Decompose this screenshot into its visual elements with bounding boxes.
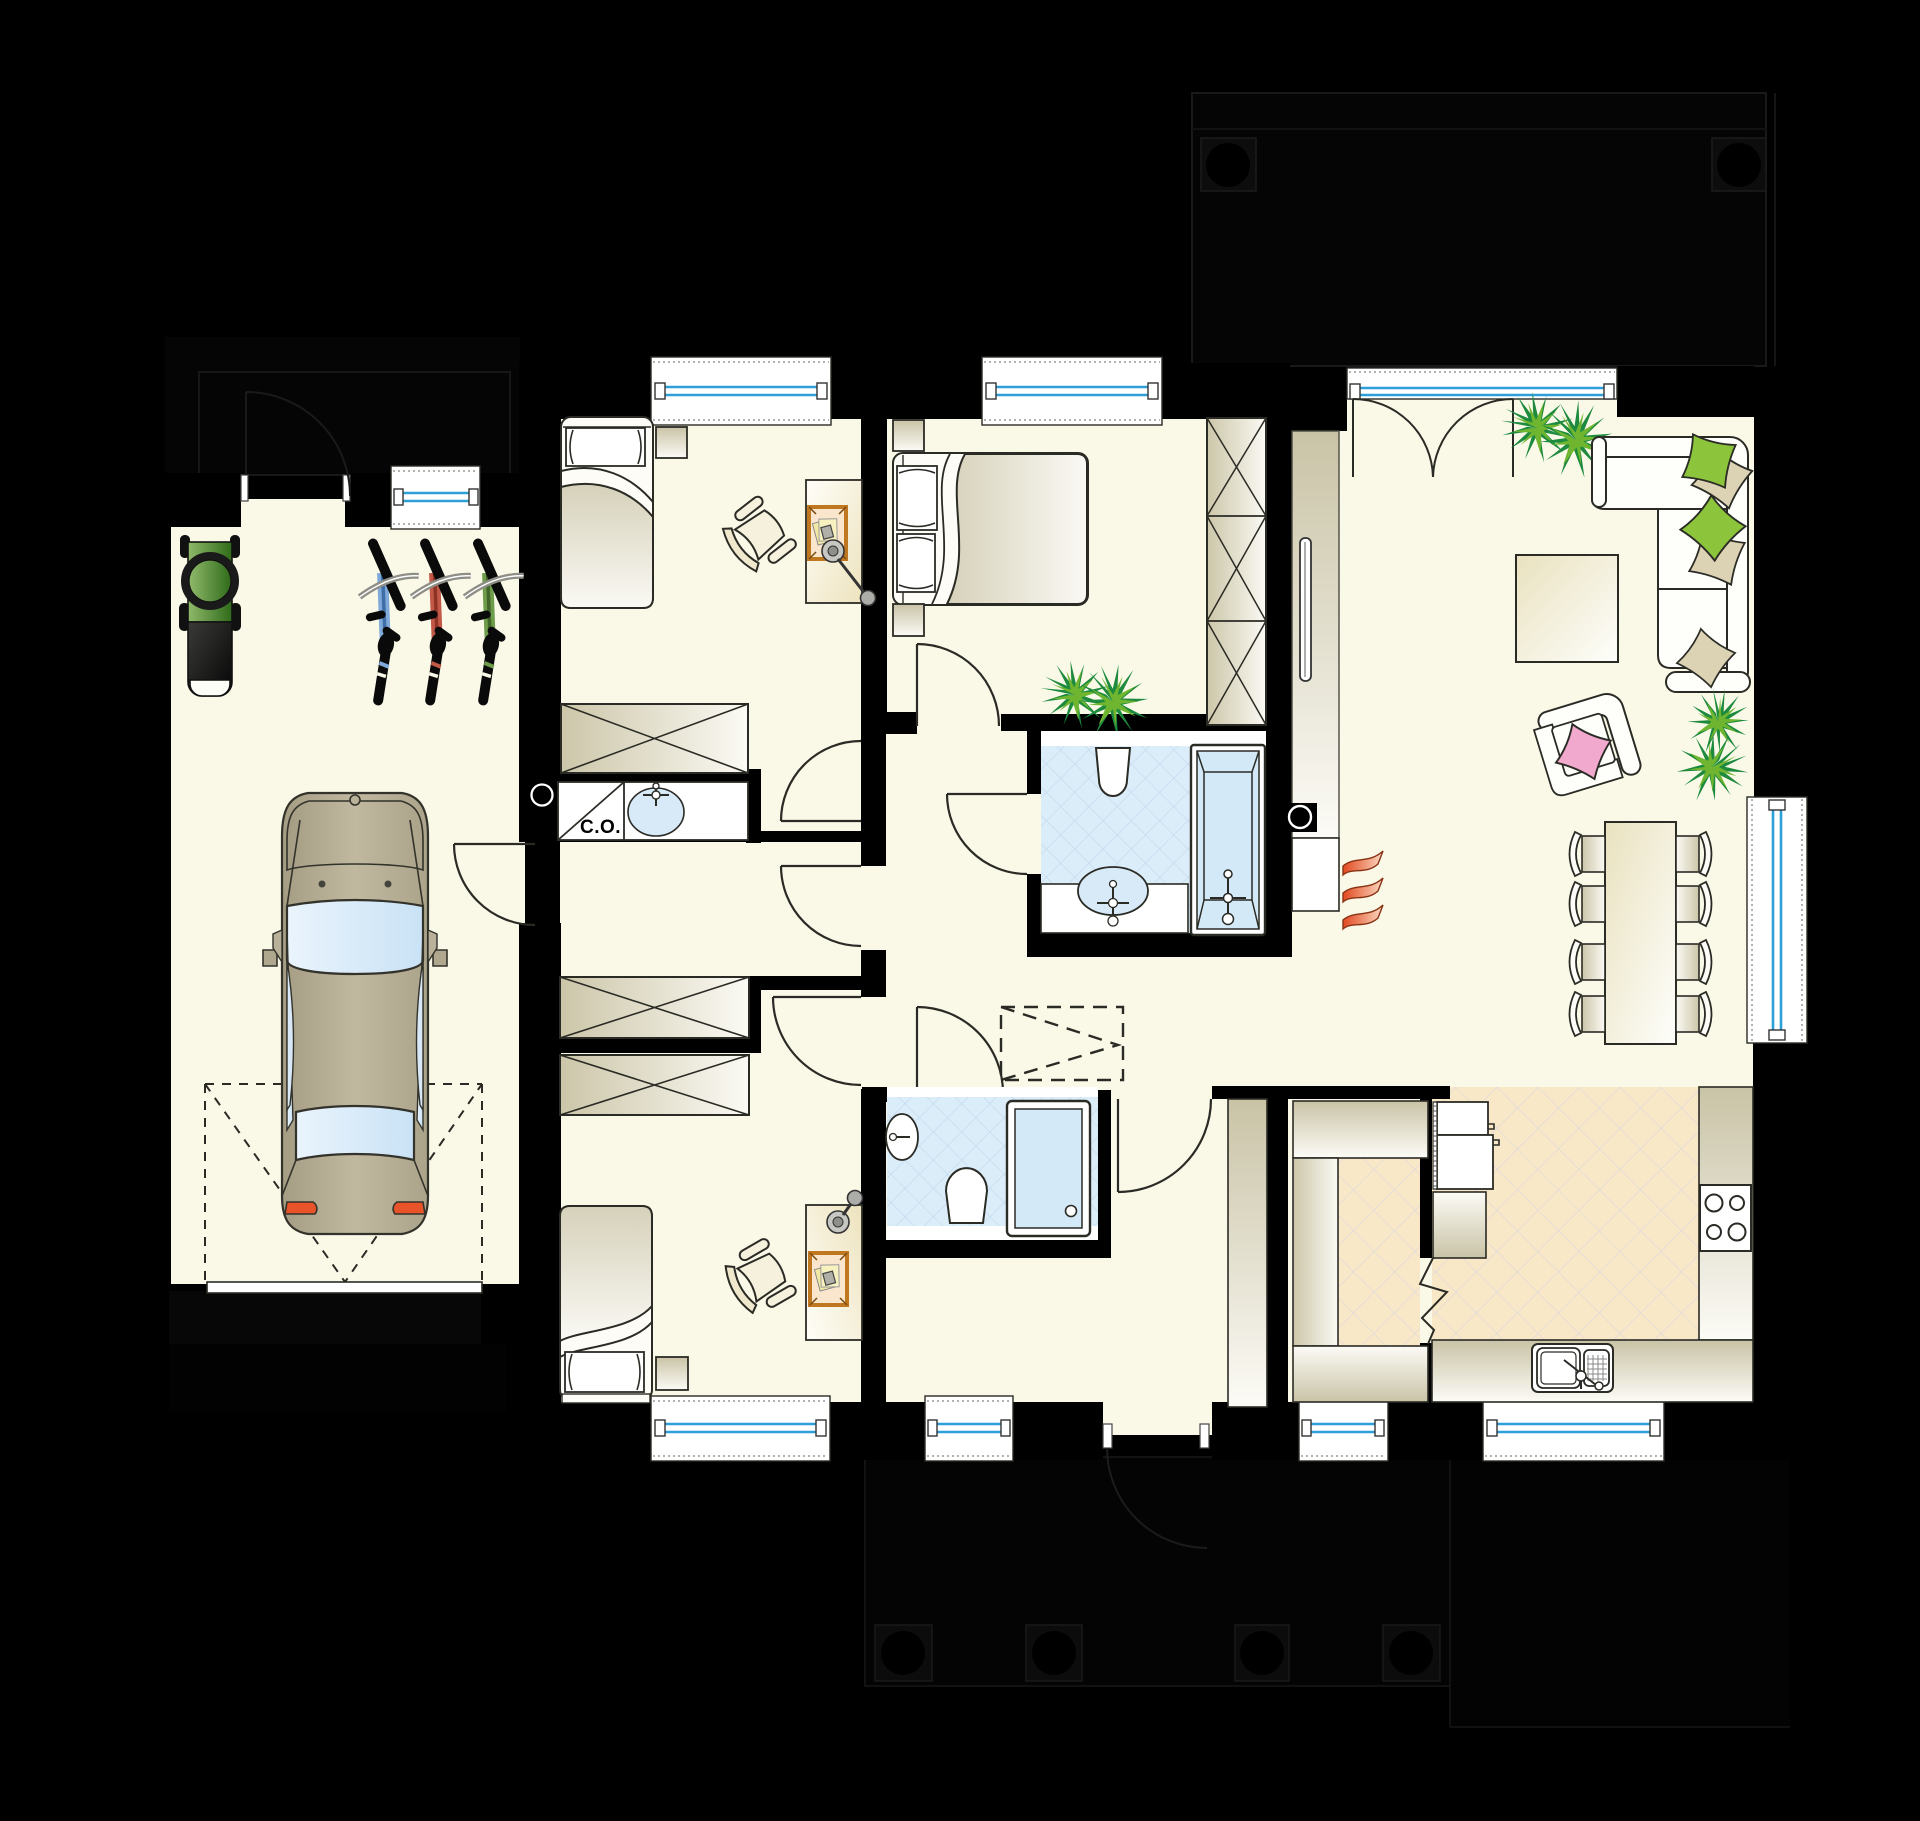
svg-text:C.O.: C.O. bbox=[580, 817, 621, 838]
